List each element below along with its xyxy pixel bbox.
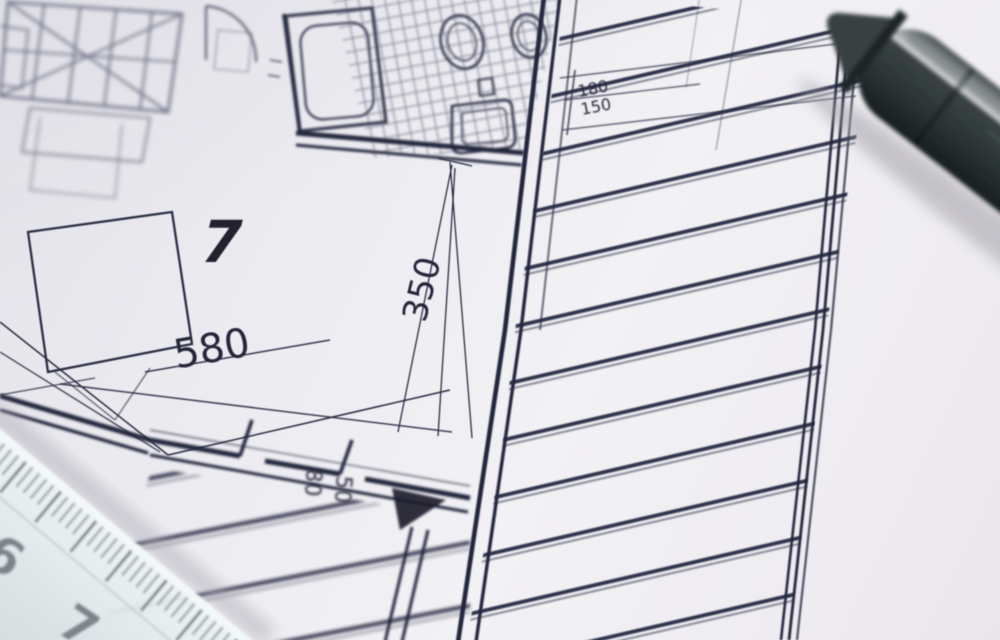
room-7-area: 7 580 350 bbox=[0, 158, 472, 455]
floor-plan-drawing: 7 580 350 18 bbox=[0, 0, 1000, 640]
dim-50-label: 50 bbox=[329, 475, 356, 505]
dim-350-label: 350 bbox=[395, 253, 450, 326]
dim-580-label: 580 bbox=[170, 320, 253, 379]
bathroom bbox=[268, 0, 562, 165]
room-number-label: 7 bbox=[193, 208, 250, 276]
room-outline bbox=[28, 212, 192, 372]
staircase bbox=[0, 2, 182, 198]
door-swing-arc bbox=[206, 6, 256, 72]
blueprint-photo: 7 580 350 18 bbox=[0, 0, 1000, 640]
dim-80-label: 80 bbox=[299, 468, 326, 498]
